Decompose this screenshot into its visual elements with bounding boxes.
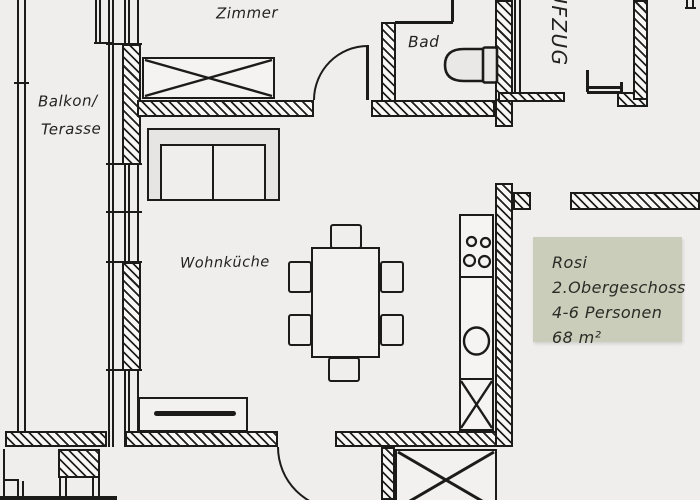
floor-plan: Zimmer Bad Balkon/ Terasse Wohnküche AUF… (0, 0, 700, 500)
info-persons: 4-6 Personen (552, 300, 682, 325)
lower-closet (395, 449, 497, 500)
room-label-balkon-line1: Balkon/ (38, 91, 98, 110)
counter-divider (461, 378, 492, 380)
shaft-west-line (519, 0, 521, 92)
chair (380, 261, 404, 293)
room-label-bad: Bad (408, 33, 440, 52)
info-floor: 2.Obergeschoss (552, 275, 682, 300)
sideboard-bar (154, 411, 236, 416)
railing-tick (14, 82, 29, 84)
chair (288, 261, 312, 293)
wall-lower-west-pillar (58, 449, 100, 478)
window-line (108, 0, 110, 447)
window-line (99, 0, 101, 44)
balcony-railing-outer (17, 0, 19, 447)
bad-north-line (395, 21, 453, 24)
window-tick (106, 211, 142, 213)
info-box: Rosi 2.Obergeschoss 4-6 Personen 68 m² (533, 237, 682, 342)
wall-shaft-east (633, 0, 648, 100)
elevator-door-line (587, 91, 623, 94)
wall-kitchen-east (495, 183, 513, 447)
wall-kitchen-notch (513, 192, 531, 210)
chair (380, 314, 404, 346)
wall-zimmer-south (137, 100, 314, 117)
lower-window-line (3, 449, 5, 500)
wall-bad-west (381, 22, 396, 102)
door-arc-zimmer (313, 45, 368, 100)
door-arc-entry (277, 447, 340, 500)
wall-south-east (335, 431, 497, 447)
window-line (95, 0, 97, 44)
bottom-edge-strip (0, 496, 117, 500)
corner-tick (685, 7, 696, 9)
balcony-railing-inner (24, 0, 26, 447)
chair (328, 357, 360, 382)
room-label-balkon-line2: Terasse (41, 119, 102, 138)
shaft-west-line (514, 0, 516, 92)
toilet-bowl (445, 49, 484, 81)
kitchen-counter (459, 214, 494, 431)
bad-door-jamb (451, 0, 454, 22)
room-label-wohnkueche: Wohnküche (180, 254, 270, 272)
room-label-aufzug: AUFZUG (547, 0, 571, 67)
dining-table (311, 247, 380, 358)
elevator-door-tick-left (586, 70, 589, 92)
wardrobe (142, 57, 275, 99)
door-leaf-zimmer (366, 45, 369, 100)
wall-corridor-east (570, 192, 700, 210)
wall-south-mid (125, 431, 278, 447)
info-area: 68 m² (552, 325, 682, 350)
counter-divider (461, 276, 492, 278)
elevator-door-tick-right (620, 82, 623, 92)
elevator-door-line (587, 86, 623, 89)
wall-shaft-south-left (498, 92, 565, 102)
wall-balcony-pillar-bottom (122, 262, 141, 371)
chair (288, 314, 312, 346)
sofa-seat-divider (212, 146, 214, 199)
window-line (112, 0, 114, 447)
info-apartment-name: Rosi (552, 250, 682, 275)
wall-center-column (495, 0, 513, 127)
wall-south-west (5, 431, 107, 447)
wall-bad-south (371, 100, 495, 117)
chair (330, 224, 362, 249)
wall-lower-mid (381, 447, 395, 500)
room-label-zimmer: Zimmer (216, 3, 278, 22)
